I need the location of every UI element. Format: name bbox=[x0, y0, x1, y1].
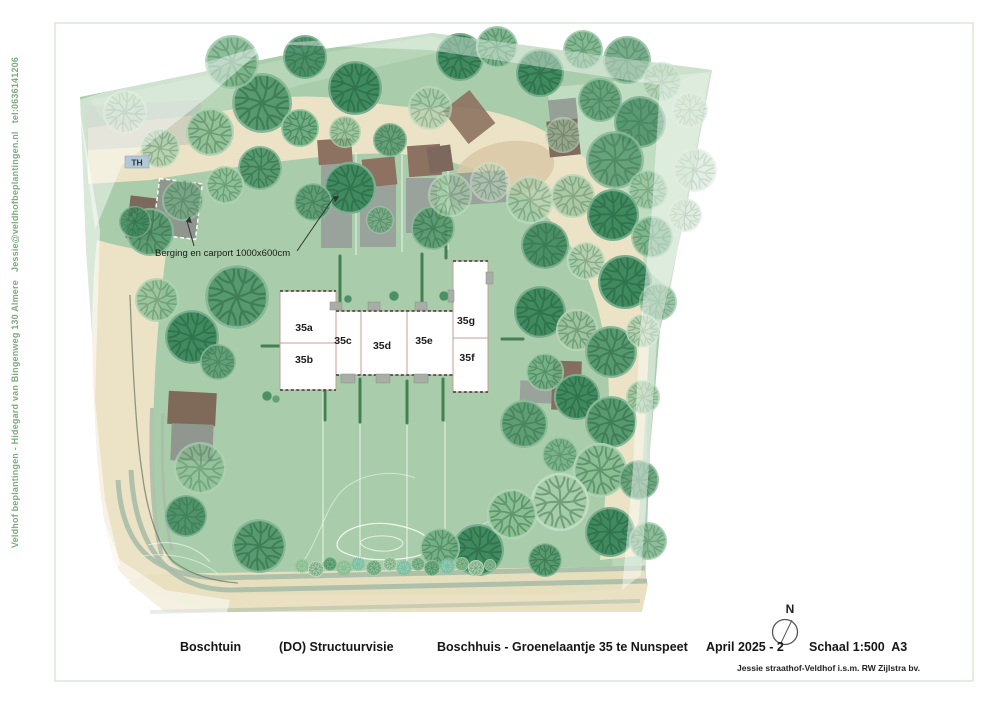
unit-label-35a: 35a bbox=[295, 322, 313, 334]
plan-sheet: Veldhof beplantingen - Hidegard van Bing… bbox=[0, 0, 1000, 707]
th-label: TH bbox=[131, 158, 142, 168]
unit-label-35c: 35c bbox=[334, 335, 352, 347]
carport-annotation-text: Berging en carport 1000x600cm bbox=[155, 248, 290, 259]
unit-label-35b: 35b bbox=[295, 354, 313, 366]
footer-address: Boschhuis - Groenelaantje 35 te Nunspeet bbox=[437, 640, 688, 654]
unit-label-35f: 35f bbox=[459, 352, 475, 364]
north-arrow: N bbox=[773, 602, 798, 645]
unit-label-35d: 35d bbox=[373, 340, 391, 352]
site-plan-drawing: 35a35b35c35d35e35f35g TH Berging en carp… bbox=[0, 0, 1000, 707]
unit-label-35g: 35g bbox=[457, 315, 475, 327]
footer-scale: Schaal 1:500 A3 bbox=[809, 640, 907, 654]
footer-byline: Jessie straathof-Veldhof i.s.m. RW Zijls… bbox=[737, 663, 920, 673]
th-badge: TH bbox=[125, 156, 149, 168]
north-label: N bbox=[786, 602, 795, 616]
unit-label-35e: 35e bbox=[415, 335, 433, 347]
footer-date: April 2025 - 2 bbox=[706, 640, 784, 654]
footer-phase: (DO) Structuurvisie bbox=[279, 640, 394, 654]
footer-project: Boschtuin bbox=[180, 640, 241, 654]
